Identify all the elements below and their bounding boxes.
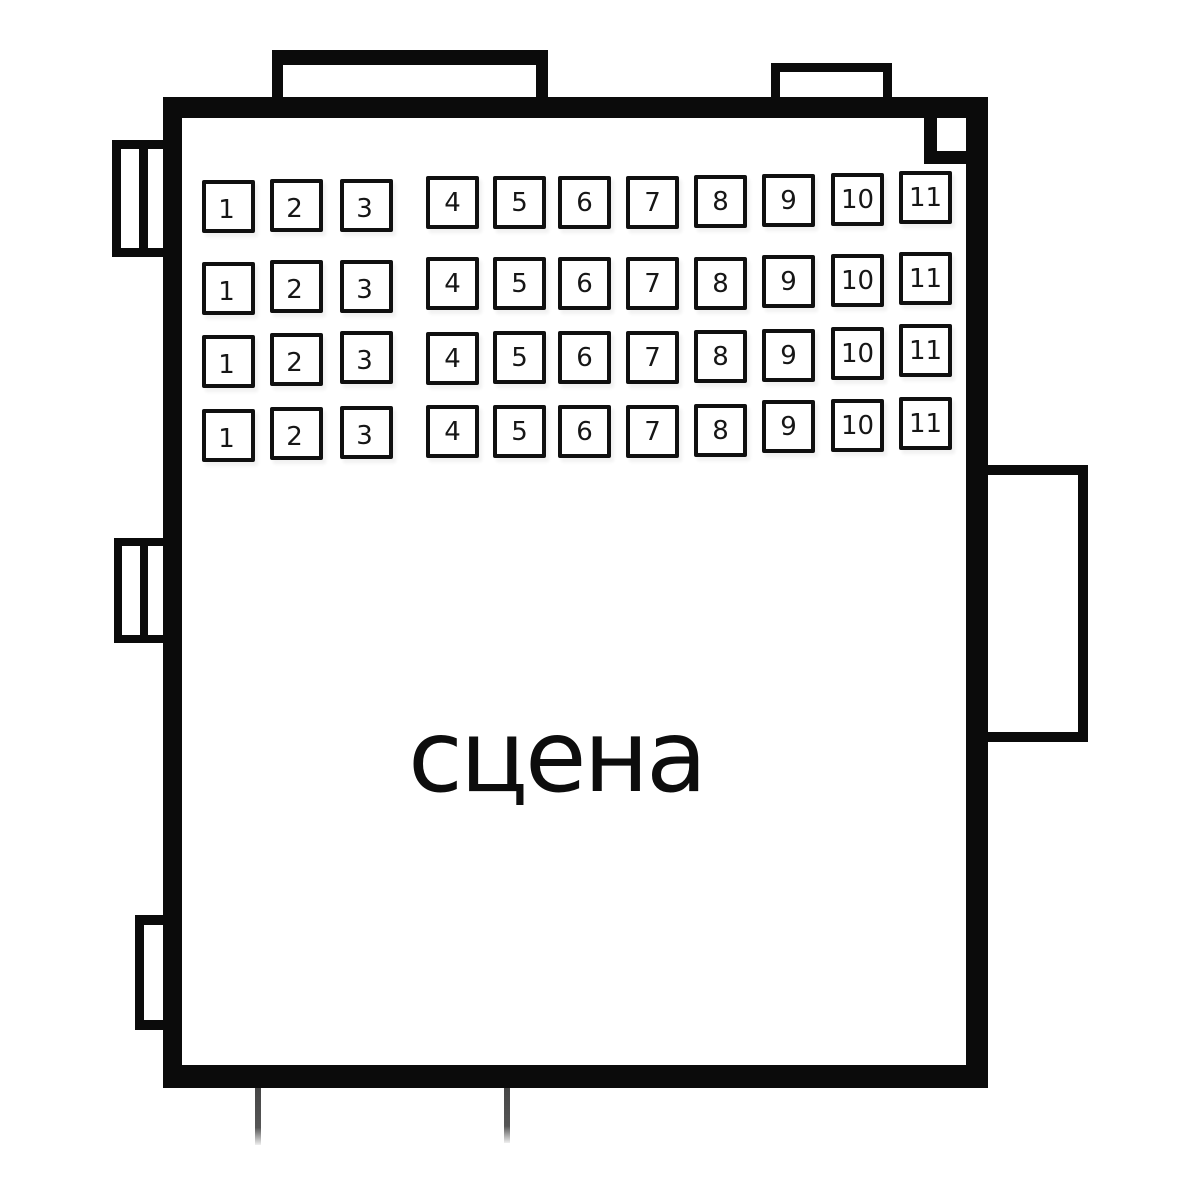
seat: 2 — [270, 407, 323, 460]
seat: 8 — [694, 404, 747, 457]
seat: 7 — [626, 405, 679, 458]
seat-number: 10 — [841, 413, 874, 439]
seat: 5 — [493, 331, 546, 384]
seat: 2 — [270, 179, 323, 232]
seat-number: 1 — [218, 426, 235, 452]
wall-top — [163, 97, 988, 118]
seat: 3 — [340, 331, 393, 384]
seat: 8 — [694, 175, 747, 228]
seat: 6 — [558, 176, 611, 229]
seat-number: 1 — [218, 197, 235, 223]
window-mullion — [139, 149, 148, 248]
seat-number: 9 — [780, 414, 797, 440]
seat: 10 — [831, 399, 884, 452]
seat-number: 3 — [356, 348, 373, 374]
seat-number: 3 — [356, 196, 373, 222]
wall-right — [966, 97, 988, 1088]
seat-number: 2 — [286, 350, 303, 376]
seat-number: 11 — [909, 411, 942, 437]
seat: 5 — [493, 405, 546, 458]
seating-plan-diagram: 1234567891011123456789101112345678910111… — [0, 0, 1181, 1181]
seat: 7 — [626, 176, 679, 229]
bottom-stub-right — [504, 1087, 510, 1143]
seat-number: 5 — [511, 419, 528, 445]
seat-number: 6 — [576, 345, 593, 371]
wall-bottom — [163, 1065, 987, 1088]
seat: 10 — [831, 173, 884, 226]
seat-number: 5 — [511, 345, 528, 371]
seat: 11 — [899, 252, 952, 305]
seat: 11 — [899, 171, 952, 224]
seat-number: 7 — [644, 271, 661, 297]
seat-number: 1 — [218, 279, 235, 305]
seat: 7 — [626, 257, 679, 310]
seat-number: 6 — [576, 419, 593, 445]
seat: 4 — [426, 332, 479, 385]
corner-niche — [924, 117, 972, 164]
seat-number: 4 — [444, 271, 461, 297]
seat: 5 — [493, 257, 546, 310]
seat: 11 — [899, 397, 952, 450]
seat-number: 7 — [644, 345, 661, 371]
seat-number: 11 — [909, 185, 942, 211]
seat-number: 5 — [511, 271, 528, 297]
seat-number: 8 — [712, 271, 729, 297]
seat-number: 7 — [644, 190, 661, 216]
seat-number: 1 — [218, 352, 235, 378]
left-door-lower — [135, 915, 165, 1030]
seat: 6 — [558, 331, 611, 384]
seat-number: 2 — [286, 277, 303, 303]
seat-number: 7 — [644, 419, 661, 445]
seat-number: 8 — [712, 189, 729, 215]
seat: 2 — [270, 333, 323, 386]
seat: 3 — [340, 406, 393, 459]
seat: 8 — [694, 257, 747, 310]
seat: 4 — [426, 405, 479, 458]
seat: 2 — [270, 260, 323, 313]
seat-number: 4 — [444, 346, 461, 372]
bottom-stub-left — [255, 1087, 261, 1145]
seat-number: 4 — [444, 419, 461, 445]
seat: 9 — [762, 329, 815, 382]
right-entrance — [984, 465, 1088, 742]
seat-number: 3 — [356, 423, 373, 449]
seat-number: 8 — [712, 418, 729, 444]
seat: 7 — [626, 331, 679, 384]
stage-label: сцена — [408, 702, 704, 812]
seat: 3 — [340, 260, 393, 313]
seat: 9 — [762, 400, 815, 453]
left-window-middle — [114, 538, 165, 643]
seat-number: 5 — [511, 190, 528, 216]
seat: 10 — [831, 254, 884, 307]
seat: 4 — [426, 176, 479, 229]
left-window-upper — [112, 140, 165, 257]
seat: 1 — [202, 262, 255, 315]
seat-number: 9 — [780, 269, 797, 295]
seat-number: 9 — [780, 343, 797, 369]
seat-number: 10 — [841, 268, 874, 294]
seat: 10 — [831, 327, 884, 380]
seat-number: 6 — [576, 190, 593, 216]
seat: 1 — [202, 335, 255, 388]
seat: 3 — [340, 179, 393, 232]
seat: 1 — [202, 409, 255, 462]
seat: 9 — [762, 174, 815, 227]
seat-number: 10 — [841, 341, 874, 367]
seat-number: 6 — [576, 271, 593, 297]
seat: 6 — [558, 257, 611, 310]
seat-number: 11 — [909, 338, 942, 364]
seat-number: 4 — [444, 190, 461, 216]
seat: 1 — [202, 180, 255, 233]
seat-number: 3 — [356, 277, 373, 303]
seat-number: 2 — [286, 424, 303, 450]
seat: 11 — [899, 324, 952, 377]
seat: 6 — [558, 405, 611, 458]
seat-number: 10 — [841, 187, 874, 213]
seat: 8 — [694, 330, 747, 383]
seat: 5 — [493, 176, 546, 229]
seat-number: 8 — [712, 344, 729, 370]
seat: 9 — [762, 255, 815, 308]
wall-left — [163, 97, 182, 1088]
seat-number: 9 — [780, 188, 797, 214]
seat: 4 — [426, 257, 479, 310]
seat-number: 11 — [909, 266, 942, 292]
seat-number: 2 — [286, 196, 303, 222]
window-mullion — [140, 546, 148, 635]
